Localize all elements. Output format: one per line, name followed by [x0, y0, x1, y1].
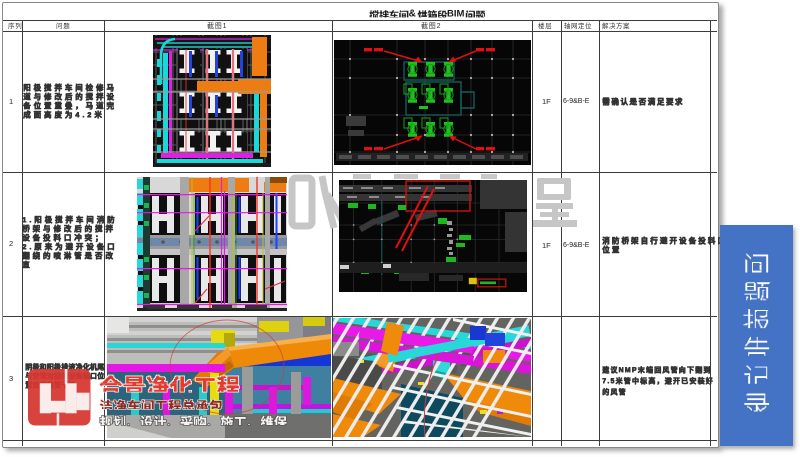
- svg-text:&: &: [409, 9, 416, 20]
- svg-text:BIM: BIM: [447, 9, 465, 20]
